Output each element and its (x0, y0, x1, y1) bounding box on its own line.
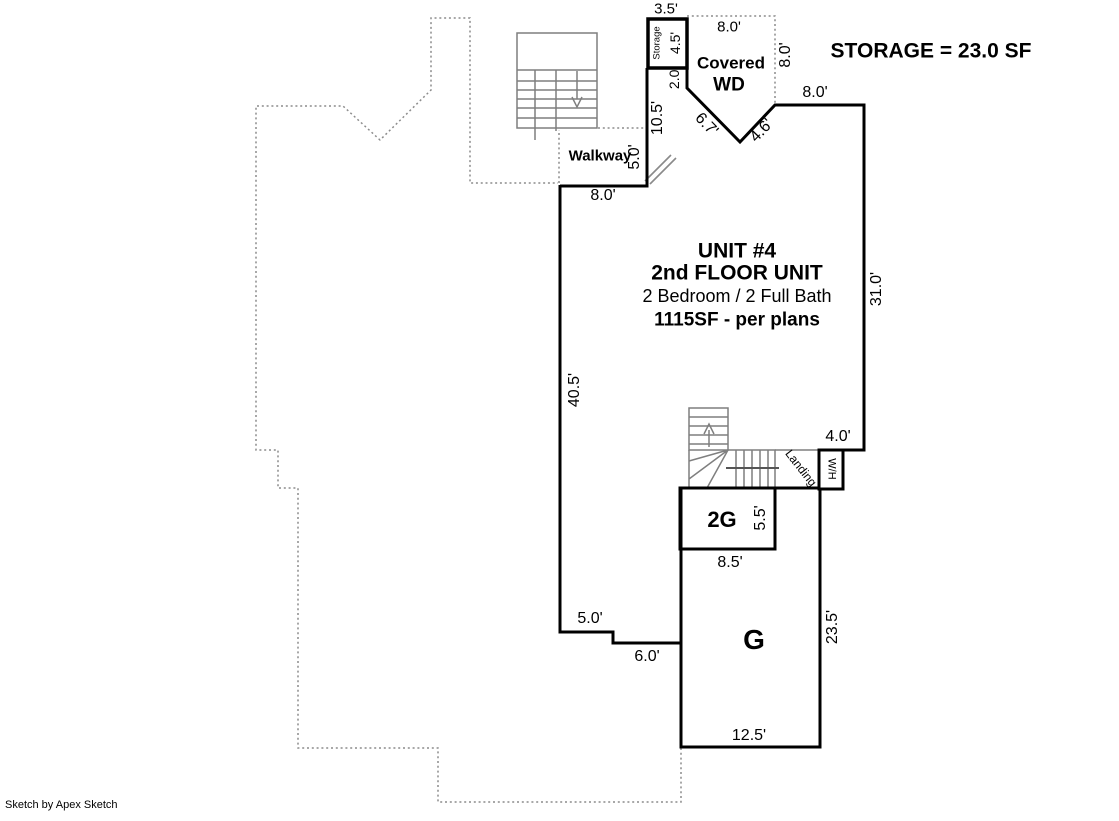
parcel-dashed-outline (256, 16, 775, 802)
unit-floor-label: 2nd FLOOR UNIT (651, 263, 823, 284)
garage-bottom-dim: 12.5' (732, 728, 766, 744)
garage-upper-label: 2G (707, 509, 736, 531)
garage-upper-height-dim: 5.5' (753, 505, 769, 530)
garage-right-dim: 23.5' (825, 610, 841, 644)
walkway-break-mark (645, 155, 676, 184)
garage-label: G (743, 626, 765, 654)
porch-right-dim: 8.0' (778, 42, 794, 67)
porch-left-dim: 2.0' (667, 67, 681, 89)
storage-summary-note: STORAGE = 23.0 SF (831, 41, 1032, 62)
storage-height-dim: 4.5' (668, 32, 682, 54)
break-mark-lines (645, 155, 676, 184)
sketch-drawing (0, 0, 1119, 821)
covered-porch-label-line1: Covered (697, 55, 765, 72)
storage-label: Storage (652, 26, 662, 59)
unit-right-dim: 31.0' (869, 272, 885, 306)
garage-outline (681, 488, 820, 747)
garage-upper-width-dim: 8.5' (717, 555, 742, 571)
walkway-width-dim: 5.0' (627, 144, 643, 169)
unit-title: UNIT #4 (698, 241, 776, 262)
water-heater-label: W/H (826, 458, 837, 479)
unit-notch-dim: 4.0' (825, 429, 850, 445)
covered-porch-label-line2: WD (713, 76, 745, 95)
unit-left-dim: 40.5' (567, 373, 583, 407)
parcel-outline-path (256, 18, 681, 802)
stairs-winder-fan (689, 450, 728, 488)
unit-step-a-dim: 5.0' (577, 611, 602, 627)
walkway-side-wall-dim: 10.5' (650, 101, 666, 135)
walkway-bottom-dim: 8.0' (590, 188, 615, 204)
sketch-credit: Sketch by Apex Sketch (5, 800, 118, 811)
stairs-top-treads (517, 70, 597, 118)
floor-plan-sketch: 3.5' Storage 4.5' 8.0' STORAGE = 23.0 SF… (0, 0, 1119, 821)
walkway-label: Walkway (569, 149, 632, 164)
unit-step-b-dim: 6.0' (634, 649, 659, 665)
unit-top-dim: 8.0' (802, 85, 827, 101)
unit-rooms-label: 2 Bedroom / 2 Full Bath (642, 287, 831, 305)
unit-area-label: 1115SF - per plans (654, 311, 820, 330)
unit-left-and-step-wall (560, 185, 681, 643)
porch-top-dim: 8.0' (717, 20, 741, 35)
stairs-top (517, 33, 597, 140)
storage-width-dim: 3.5' (654, 2, 678, 17)
